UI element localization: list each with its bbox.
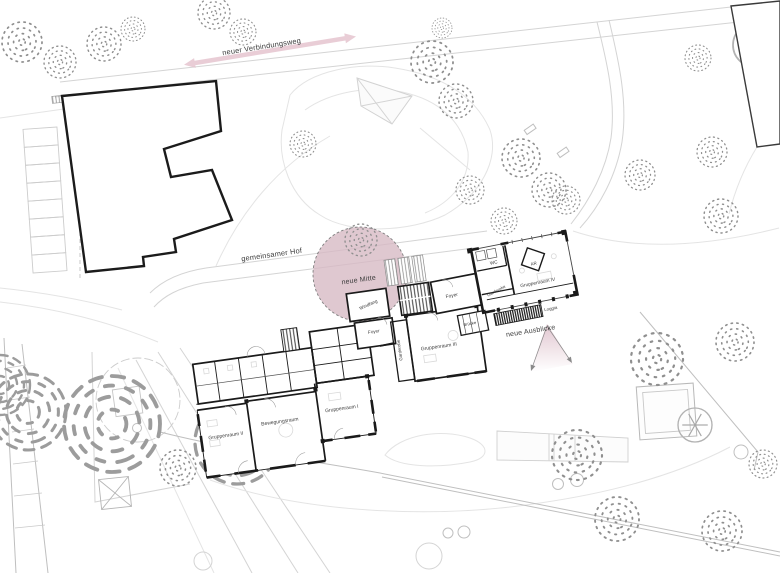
label-hof: gemeinsamer Hof	[241, 246, 304, 264]
left-wing	[188, 318, 385, 478]
neighbour-building	[731, 1, 780, 147]
label-loggia: Loggia	[544, 305, 558, 313]
existing-building	[62, 81, 232, 272]
site-plan-page: neuer Verbindungsweg gemeinsamer Hof neu…	[0, 0, 780, 573]
verbindungsweg-arrow	[184, 33, 356, 68]
site-plan: neuer Verbindungsweg gemeinsamer Hof neu…	[0, 0, 780, 573]
